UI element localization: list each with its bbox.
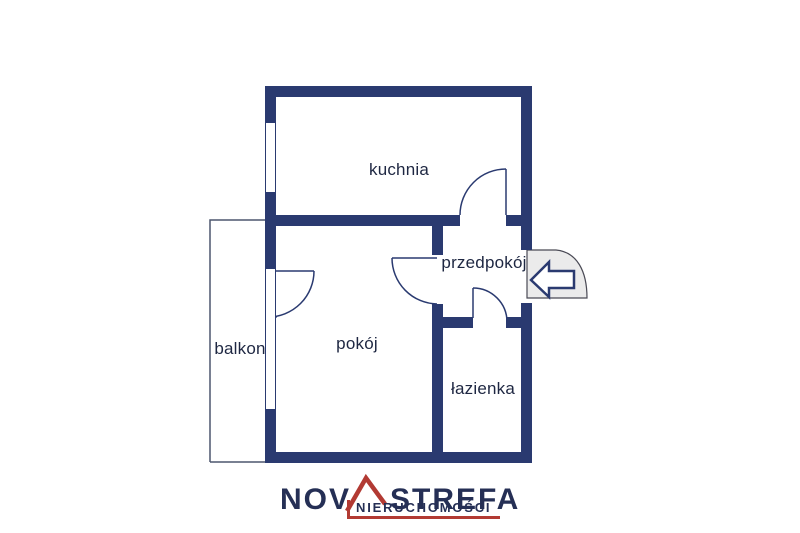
logo-wordmark: NOV STREFA xyxy=(280,483,351,517)
room-label-kuchnia: kuchnia xyxy=(369,160,429,180)
kitchen-door-arc xyxy=(460,169,506,215)
room-door-arc xyxy=(392,258,437,304)
logo-subtitle: NIERUCHOMOŚCI xyxy=(347,500,500,519)
wall-bottom xyxy=(265,452,532,463)
wall-hallway-west-upper xyxy=(432,215,443,255)
brand-logo: NOV STREFA NIERUCHOMOŚCI xyxy=(280,474,530,526)
wall-bathroom-north-right xyxy=(506,317,521,328)
room-label-lazienka: łazienka xyxy=(451,379,515,399)
logo-text-prefix: NOV xyxy=(280,483,351,516)
floor-plan-canvas: kuchnia pokój przedpokój łazienka balkon… xyxy=(0,0,800,533)
wall-kitchen-divider-right xyxy=(506,215,532,226)
room-label-balkon: balkon xyxy=(214,339,265,359)
wall-left-upper xyxy=(265,86,276,122)
wall-kitchen-divider-left xyxy=(265,215,460,226)
wall-bathroom-north-left xyxy=(443,317,473,328)
room-label-przedpokoj: przedpokój xyxy=(441,253,526,273)
wall-right-lower xyxy=(521,303,532,463)
wall-left-mid xyxy=(265,193,276,268)
kitchen-window xyxy=(265,122,276,193)
bathroom-door-arc xyxy=(473,288,507,322)
wall-top xyxy=(265,86,532,97)
wall-hallway-west-lower xyxy=(432,304,443,452)
room-label-pokoj: pokój xyxy=(336,334,378,354)
room-balcony-window xyxy=(265,268,276,410)
